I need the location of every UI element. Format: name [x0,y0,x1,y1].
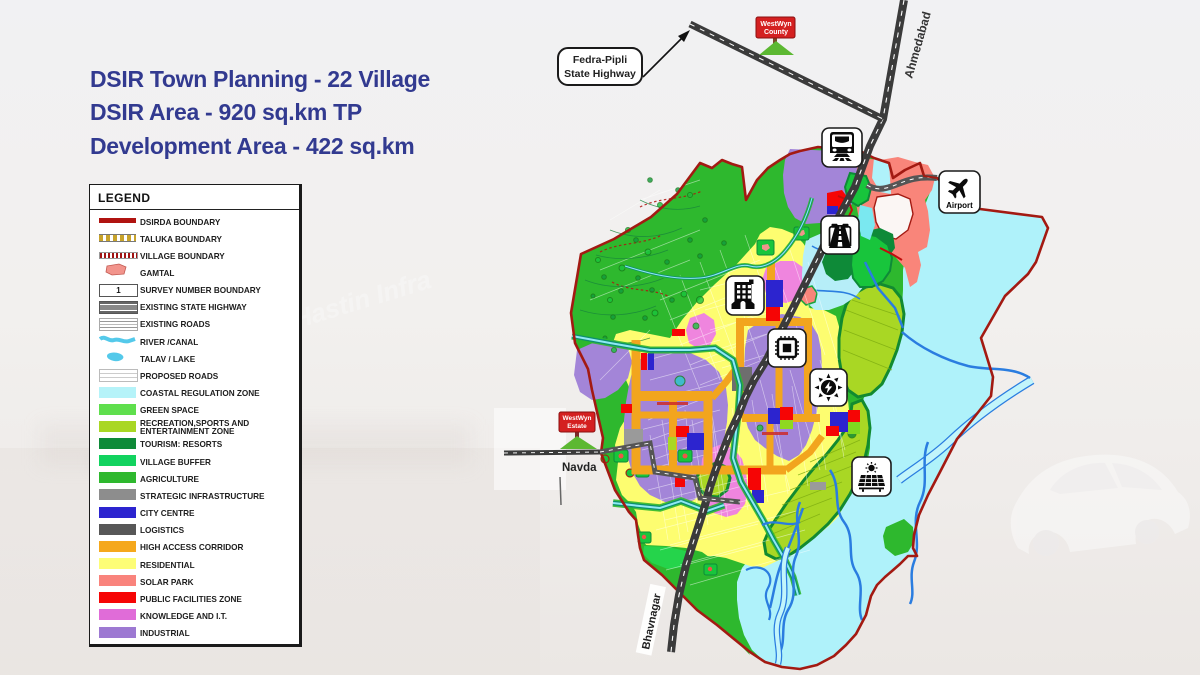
svg-text:WestWyn: WestWyn [760,21,791,28]
svg-text:County: County [764,29,788,36]
svg-text:Airport: Airport [946,201,973,210]
svg-text:Ahmedabad: Ahmedabad [901,10,933,80]
svg-text:WestWyn: WestWyn [562,415,591,422]
svg-text:Fedra-Pipli: Fedra-Pipli [573,54,627,66]
svg-text:State Highway: State Highway [564,68,636,80]
svg-text:Estate: Estate [567,423,587,430]
svg-text:Navda: Navda [562,462,597,474]
